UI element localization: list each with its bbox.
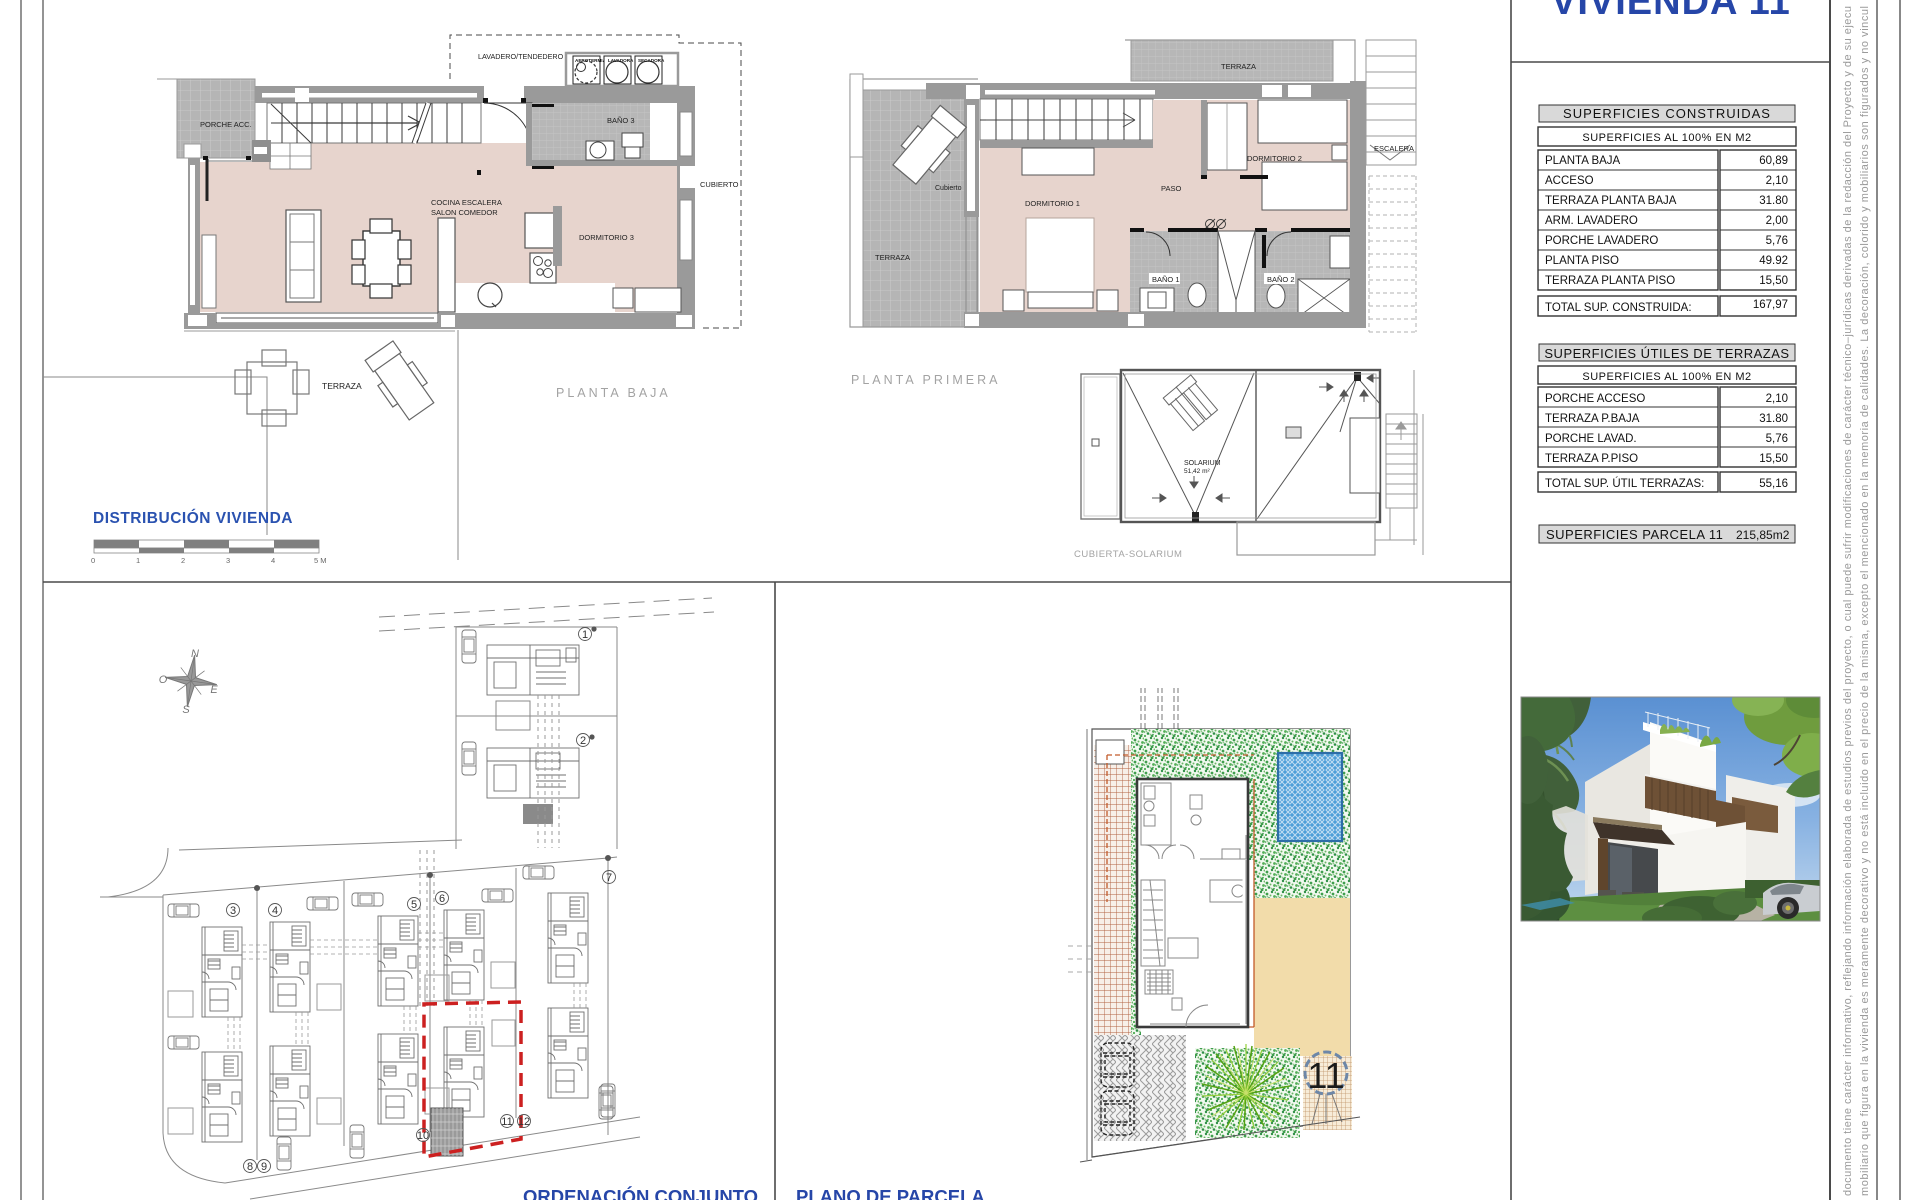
- svg-text:3: 3: [230, 905, 236, 917]
- svg-text:documento tiene carácter infor: documento tiene carácter informativo, re…: [1842, 6, 1854, 1196]
- svg-text:ACCESO: ACCESO: [1545, 175, 1594, 187]
- svg-text:TERRAZA P.BAJA: TERRAZA P.BAJA: [1545, 413, 1640, 425]
- svg-text:TERRAZA: TERRAZA: [322, 381, 362, 391]
- svg-text:PLANTA BAJA: PLANTA BAJA: [1545, 155, 1621, 167]
- svg-text:2: 2: [580, 735, 586, 747]
- svg-text:PORCHE LAVAD.: PORCHE LAVAD.: [1545, 433, 1637, 445]
- svg-text:CUBIERTA-SOLARIUM: CUBIERTA-SOLARIUM: [1074, 549, 1182, 560]
- svg-text:TOTAL SUP. ÚTIL TERRAZAS:: TOTAL SUP. ÚTIL TERRAZAS:: [1545, 477, 1704, 490]
- svg-text:8: 8: [247, 1161, 253, 1173]
- svg-text:CUBIERTO: CUBIERTO: [700, 180, 739, 189]
- svg-text:SUPERFICIES AL 100% EN M2: SUPERFICIES AL 100% EN M2: [1582, 132, 1751, 144]
- svg-text:12: 12: [518, 1116, 530, 1128]
- svg-text:1: 1: [582, 629, 588, 641]
- svg-text:PLANO DE PARCELA: PLANO DE PARCELA: [796, 1186, 985, 1200]
- svg-text:4: 4: [271, 556, 275, 565]
- svg-text:LAVADORA: LAVADORA: [608, 58, 634, 63]
- svg-text:15,50: 15,50: [1759, 453, 1788, 465]
- svg-text:1: 1: [136, 556, 140, 565]
- svg-text:TERRAZA: TERRAZA: [875, 253, 910, 262]
- svg-text:9: 9: [261, 1161, 267, 1173]
- svg-text:SECADORA: SECADORA: [638, 58, 665, 63]
- svg-text:2,10: 2,10: [1766, 175, 1788, 187]
- svg-text:PORCHE ACC.: PORCHE ACC.: [200, 120, 252, 129]
- svg-text:TERRAZA P.PISO: TERRAZA P.PISO: [1545, 453, 1638, 465]
- svg-text:SUPERFICIES AL 100% EN M2: SUPERFICIES AL 100% EN M2: [1582, 371, 1751, 383]
- svg-text:SUPERFICIES ÚTILES DE TERRA: SUPERFICIES ÚTILES DE TERRAZAS: [1544, 346, 1789, 361]
- svg-text:O: O: [159, 674, 168, 686]
- svg-text:TERRAZA PLANTA BAJA: TERRAZA PLANTA BAJA: [1545, 195, 1677, 207]
- svg-text:TOTAL SUP. CONSTRUIDA:: TOTAL SUP. CONSTRUIDA:: [1545, 302, 1692, 314]
- svg-text:5 M: 5 M: [314, 556, 327, 565]
- svg-text:15,50: 15,50: [1759, 275, 1788, 287]
- svg-text:Cubierto: Cubierto: [935, 185, 962, 192]
- svg-text:TERRAZA PLANTA PISO: TERRAZA PLANTA PISO: [1545, 275, 1675, 287]
- svg-text:5: 5: [411, 899, 417, 911]
- svg-text:DORMITORIO 2: DORMITORIO 2: [1247, 154, 1302, 163]
- svg-text:215,85m2: 215,85m2: [1736, 528, 1790, 542]
- svg-text:DORMITORIO 3: DORMITORIO 3: [579, 233, 634, 242]
- svg-text:PLANTA PRIMERA: PLANTA PRIMERA: [851, 373, 1000, 387]
- svg-text:mobiliario que figura en la vi: mobiliario que figura en la vivienda es …: [1859, 6, 1871, 1196]
- svg-text:5,76: 5,76: [1766, 235, 1788, 247]
- svg-text:10: 10: [417, 1130, 429, 1142]
- svg-text:BAÑO 1: BAÑO 1: [1152, 275, 1180, 284]
- svg-text:SUPERFICIES CONSTRUIDAS: SUPERFICIES CONSTRUIDAS: [1563, 106, 1771, 121]
- svg-text:11: 11: [1307, 1055, 1344, 1096]
- svg-text:6: 6: [439, 893, 445, 905]
- svg-text:31.80: 31.80: [1759, 195, 1788, 207]
- svg-text:PORCHE ACCESO: PORCHE ACCESO: [1545, 393, 1645, 405]
- svg-text:SOLARIUM: SOLARIUM: [1184, 460, 1221, 467]
- svg-text:2,10: 2,10: [1766, 393, 1788, 405]
- svg-text:E: E: [210, 684, 218, 696]
- svg-text:LAVADERO/TENDEDERO: LAVADERO/TENDEDERO: [478, 52, 564, 61]
- svg-text:SUPERFICIES PARCELA 11: SUPERFICIES PARCELA 11: [1546, 527, 1723, 542]
- svg-text:BAÑO 2: BAÑO 2: [1267, 275, 1295, 284]
- svg-text:0: 0: [91, 556, 95, 565]
- svg-text:PLANTA PISO: PLANTA PISO: [1545, 255, 1619, 267]
- svg-text:S: S: [182, 704, 190, 716]
- svg-text:60,89: 60,89: [1759, 155, 1788, 167]
- svg-text:2,00: 2,00: [1766, 215, 1788, 227]
- svg-text:ORDENACIÓN CONJUNTO: ORDENACIÓN CONJUNTO: [523, 1186, 758, 1200]
- svg-text:BAÑO 3: BAÑO 3: [607, 116, 635, 125]
- svg-text:ESCALERA: ESCALERA: [1374, 144, 1414, 153]
- svg-text:PASO: PASO: [1161, 184, 1181, 193]
- svg-text:N: N: [191, 648, 199, 660]
- svg-text:51,42 m²: 51,42 m²: [1184, 468, 1210, 475]
- svg-text:31.80: 31.80: [1759, 413, 1788, 425]
- svg-text:PORCHE LAVADERO: PORCHE LAVADERO: [1545, 235, 1658, 247]
- svg-text:AEROTERMIA: AEROTERMIA: [575, 58, 607, 63]
- svg-text:7: 7: [606, 872, 612, 884]
- svg-text:167,97: 167,97: [1753, 299, 1788, 311]
- svg-text:TERRAZA: TERRAZA: [1221, 62, 1256, 71]
- svg-text:DORMITORIO 1: DORMITORIO 1: [1025, 199, 1080, 208]
- svg-text:3: 3: [226, 556, 230, 565]
- svg-text:SALON COMEDOR: SALON COMEDOR: [431, 208, 498, 217]
- svg-text:PLANTA BAJA: PLANTA BAJA: [556, 386, 671, 400]
- svg-text:11: 11: [501, 1116, 512, 1128]
- svg-text:VIVIENDA 11: VIVIENDA 11: [1551, 0, 1791, 23]
- svg-text:55,16: 55,16: [1759, 478, 1788, 490]
- svg-text:49.92: 49.92: [1759, 255, 1788, 267]
- svg-text:COCINA ESCALERA: COCINA ESCALERA: [431, 198, 502, 207]
- svg-text:4: 4: [272, 905, 278, 917]
- svg-text:5,76: 5,76: [1766, 433, 1788, 445]
- svg-text:ARM. LAVADERO: ARM. LAVADERO: [1545, 215, 1638, 227]
- svg-text:2: 2: [181, 556, 185, 565]
- svg-text:DISTRIBUCIÓN VIVIENDA: DISTRIBUCIÓN VIVIENDA: [93, 509, 293, 527]
